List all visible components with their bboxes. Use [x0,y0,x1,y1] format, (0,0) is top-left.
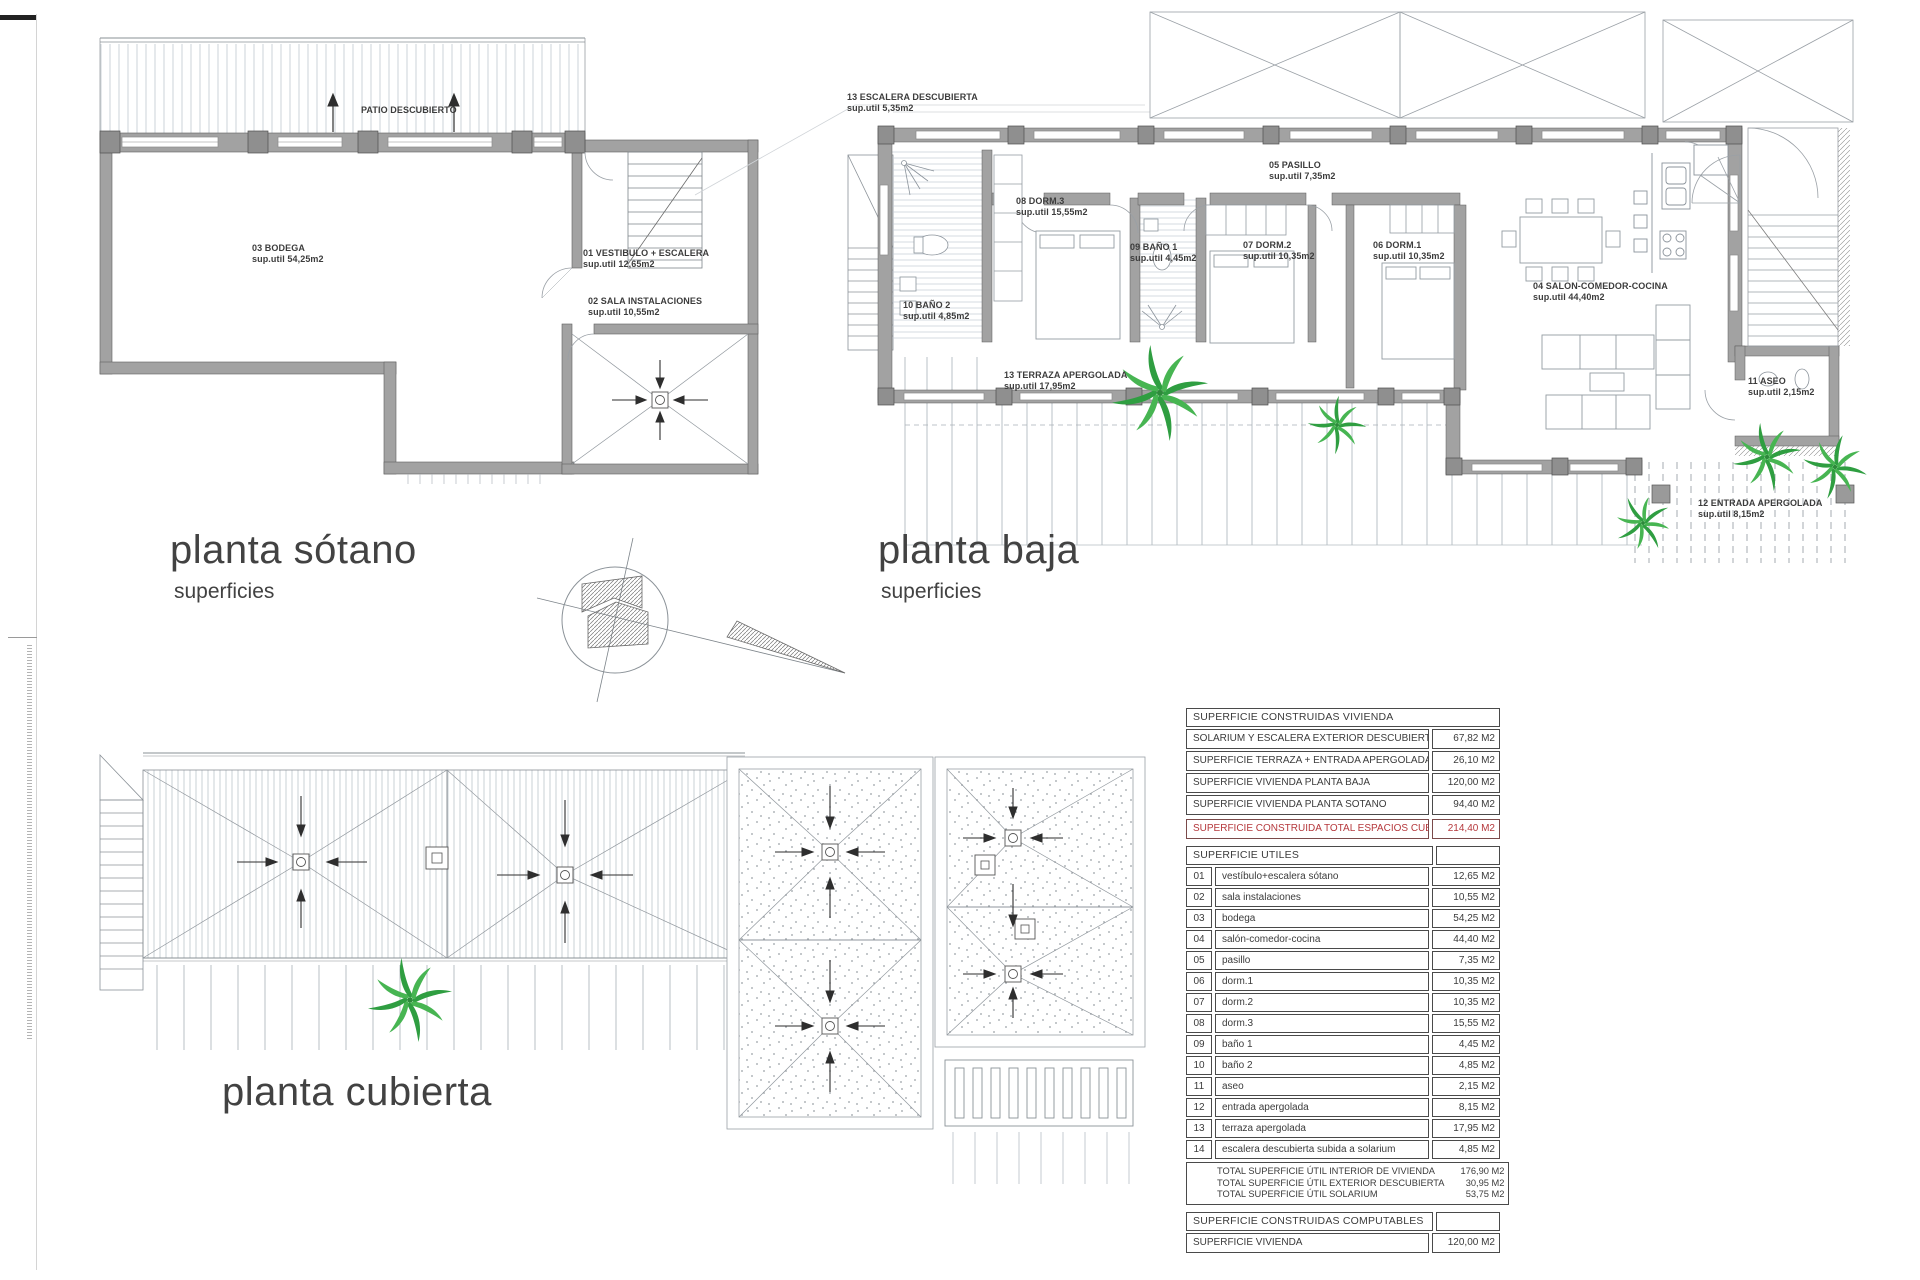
room-label-vestibulo: 01 VESTIBULO + ESCALERAsup.util 12,65m2 [583,248,709,269]
surface-tables: SUPERFICIE CONSTRUIDAS VIVIENDA SOLARIUM… [1186,708,1500,1255]
pergola-lines-right [953,1132,1129,1184]
margin-fine-print [27,645,32,1040]
roof-panel-middle [426,770,745,958]
fridge-icon [1694,145,1728,175]
room-label-terraza: 13 TERRAZA APERGOLADAsup.util 17,95m2 [1004,370,1127,391]
table-row: 10baño 24,85 M2 [1186,1056,1500,1075]
room-label-bano1: 09 BAÑO 1sup.util 4,45m2 [1130,242,1197,263]
table-row: 01vestíbulo+escalera sótano12,65 M2 [1186,867,1500,886]
architectural-plan-sheet: { "colors": { "accent_red": "#b5383c", "… [0,0,1920,1280]
table-row: 14escalera descubierta subida a solarium… [1186,1140,1500,1159]
palm-tree-icon [368,958,452,1042]
sotano-plan-drawing [88,28,788,520]
room-label-sala-instalaciones: 02 SALA INSTALACIONESsup.util 10,55m2 [588,296,702,317]
table-row: 06dorm.110,35 M2 [1186,972,1500,991]
north-arrow [530,520,860,710]
title-planta-cubierta: planta cubierta [222,1070,492,1115]
title-planta-baja: planta baja [878,528,1079,573]
computables-header: SUPERFICIE CONSTRUIDAS COMPUTABLES [1186,1212,1500,1231]
room-label-bodega: 03 BODEGAsup.util 54,25m2 [252,243,324,264]
sink-icon [1144,219,1158,231]
room-label-salon: 04 SALON-COMEDOR-COCINAsup.util 44,40m2 [1533,281,1668,302]
sotano-bottom-ticks [408,474,540,484]
pergola-grill [945,1060,1133,1126]
table-row: SUPERFICIE VIVIENDA PLANTA BAJA120,00 M2 [1186,773,1500,793]
room-label-entrada: 12 ENTRADA APERGOLADAsup.util 8,15m2 [1698,498,1822,519]
kitchen [1634,145,1728,273]
utiles-body: 01vestíbulo+escalera sótano12,65 M202sal… [1186,867,1500,1159]
table-row: 05pasillo7,35 M2 [1186,951,1500,970]
total-row: TOTAL SUPERFICIE ÚTIL SOLARIUM53,75 M2 [1187,1189,1508,1201]
chimney-icon [426,847,448,869]
table-row: SOLARIUM Y ESCALERA EXTERIOR DESCUBIERTA… [1186,729,1500,749]
toilet-icon [914,235,948,255]
sofas [1542,305,1690,429]
room-label-aseo: 11 ASEOsup.util 2,15m2 [1748,376,1815,397]
construidas-total-row: SUPERFICIE CONSTRUIDA TOTAL ESPACIOS CUB… [1186,819,1500,839]
table-row: 09baño 14,45 M2 [1186,1035,1500,1054]
pergola-lines-left [157,965,724,1050]
table-row: SUPERFICIE VIVIENDA120,00 M2 [1186,1233,1500,1253]
table-row: 04salón-comedor-cocina44,40 M2 [1186,930,1500,949]
floor-drain-icon [652,392,668,408]
roof-drain-icon [293,854,309,870]
cubierta-stair [100,755,143,990]
room-label-dorm3: 08 DORM.3sup.util 15,55m2 [1016,196,1088,217]
table-row: SUPERFICIE TERRAZA + ENTRADA APERGOLADA2… [1186,751,1500,771]
room-label-bano2: 10 BAÑO 2sup.util 4,85m2 [903,300,970,321]
solarium-panel-a [727,757,933,1129]
kitchen-sink-icon [1662,163,1690,209]
table-row: SUPERFICIE VIVIENDA PLANTA SOTANO94,40 M… [1186,795,1500,815]
roof-drain-icon [557,867,573,883]
subtitle-sotano: superficies [174,580,274,604]
table-row: 11aseo2,15 M2 [1186,1077,1500,1096]
sink-icon [900,277,916,291]
sheet-margin-line [36,14,37,1270]
table-row: 12entrada apergolada8,15 M2 [1186,1098,1500,1117]
sheet-corner-tick [0,15,37,20]
north-arrow-pointer [727,621,845,673]
solarium-stair [1748,128,1838,346]
dining-set [1502,199,1620,281]
solarium-panel-b [935,757,1145,1047]
table-row: 08dorm.315,55 M2 [1186,1014,1500,1033]
total-row: TOTAL SUPERFICIE ÚTIL INTERIOR DE VIVIEN… [1187,1166,1508,1178]
patio-label: PATIO DESCUBIERTO [361,105,457,116]
coffee-table [1590,373,1624,391]
utiles-totals-box: TOTAL SUPERFICIE ÚTIL INTERIOR DE VIVIEN… [1186,1162,1500,1205]
stair-wall-hatch [1838,128,1850,346]
title-planta-sotano: planta sótano [170,528,417,573]
utiles-totals: TOTAL SUPERFICIE ÚTIL INTERIOR DE VIVIEN… [1186,1162,1509,1205]
room-label-pasillo: 05 PASILLOsup.util 7,35m2 [1269,160,1336,181]
total-row: TOTAL SUPERFICIE ÚTIL EXTERIOR DESCUBIER… [1187,1178,1508,1190]
table-row: 02sala instalaciones10,55 M2 [1186,888,1500,907]
hob-icon [1660,231,1686,259]
utiles-header: SUPERFICIE UTILES [1186,846,1500,865]
table-row: 03bodega54,25 M2 [1186,909,1500,928]
subtitle-baja: superficies [881,580,981,604]
table-row: 13terraza apergolada17,95 M2 [1186,1119,1500,1138]
room-label-dorm2: 07 DORM.2sup.util 10,35m2 [1243,240,1315,261]
room-label-escalera-descubierta: 13 ESCALERA DESCUBIERTAsup.util 5,35m2 [847,92,978,113]
solarium-roof-panels [1150,12,1853,122]
room-label-dorm1: 06 DORM.1sup.util 10,35m2 [1373,240,1445,261]
table-row: 07dorm.210,35 M2 [1186,993,1500,1012]
construidas-body: SOLARIUM Y ESCALERA EXTERIOR DESCUBIERTA… [1186,729,1500,815]
construidas-header: SUPERFICIE CONSTRUIDAS VIVIENDA [1186,708,1500,727]
roof-panel-left [143,770,447,958]
sheet-margin-tick [8,637,37,638]
baja-plan-drawing [690,5,1880,565]
patio-descubierto [100,38,585,140]
computables-body: SUPERFICIE VIVIENDA120,00 M2 [1186,1233,1500,1253]
